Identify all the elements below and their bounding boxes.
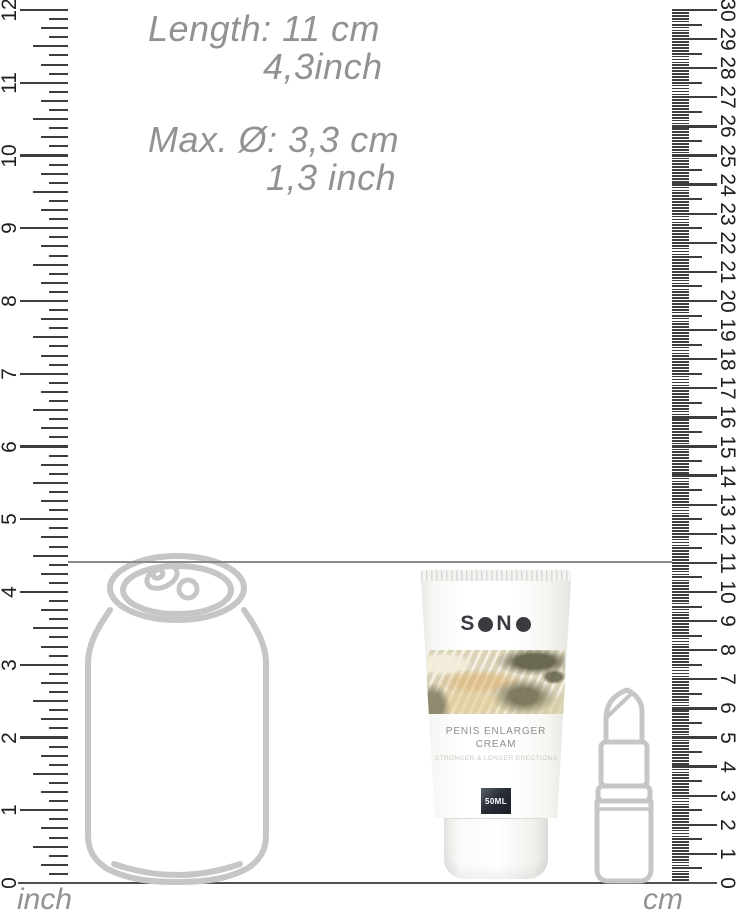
ruler-tick — [49, 309, 68, 311]
ruler-tick — [672, 297, 689, 299]
ruler-tick — [672, 609, 689, 611]
ruler-tick — [672, 449, 689, 451]
ruler-number: 5 — [0, 513, 22, 525]
ruler-tick — [672, 370, 689, 372]
ruler-tick — [672, 565, 689, 567]
ruler-tick — [672, 111, 702, 113]
ruler-tick — [672, 24, 702, 26]
ruler-tick — [41, 827, 68, 829]
ruler-tick — [672, 780, 702, 782]
ruler-tick — [672, 125, 717, 127]
ruler-tick — [672, 495, 689, 497]
ruler-tick — [672, 73, 689, 75]
ruler-tick — [672, 646, 689, 648]
ruler-tick — [672, 131, 689, 133]
ruler-tick — [672, 830, 689, 832]
ruler-tick — [672, 248, 689, 250]
ruler-tick — [672, 355, 689, 357]
ruler-tick — [672, 585, 689, 587]
ruler-tick — [672, 606, 702, 608]
ruler-number: 9 — [0, 222, 22, 234]
ruler-tick — [672, 795, 717, 797]
ruler-tick — [672, 451, 689, 453]
ruler-number: 28 — [715, 57, 737, 80]
ruler-tick — [672, 806, 689, 808]
ruler-tick — [672, 18, 689, 20]
ruler-tick — [672, 547, 702, 549]
ruler-tick — [672, 676, 689, 678]
ruler-tick — [672, 152, 689, 154]
ruler-tick — [672, 213, 717, 215]
ruler-tick — [672, 143, 689, 145]
ruler-tick — [672, 483, 689, 485]
ruler-tick — [672, 454, 689, 456]
ruler-tick — [672, 507, 689, 509]
ruler-number: 25 — [715, 144, 737, 167]
ruler-tick — [41, 864, 68, 866]
ruler-tick — [672, 137, 689, 139]
ruler-tick — [672, 222, 689, 224]
ruler-tick — [672, 88, 689, 90]
ruler-tick — [672, 763, 689, 765]
ruler-tick — [49, 691, 68, 693]
ruler-tick — [672, 91, 689, 93]
ruler-tick — [672, 530, 689, 532]
ruler-tick — [20, 518, 68, 520]
ruler-tick — [41, 245, 68, 247]
ruler-tick — [49, 400, 68, 402]
ruler-number: 8 — [0, 295, 22, 307]
length-annotation: Length: 11 cm — [148, 8, 380, 50]
ruler-tick — [672, 283, 689, 285]
ruler-tick — [672, 140, 702, 142]
ruler-tick — [672, 99, 689, 101]
ruler-tick — [41, 27, 68, 29]
ruler-number: 8 — [715, 644, 737, 656]
ruler-tick — [49, 18, 68, 20]
ruler-tick — [672, 801, 689, 803]
ruler-tick — [672, 306, 689, 308]
ruler-tick — [672, 524, 689, 526]
ruler-number: 3 — [715, 790, 737, 802]
ruler-tick — [672, 798, 689, 800]
ruler-tick — [41, 209, 68, 211]
ruler-tick — [672, 224, 689, 226]
ruler-tick — [41, 173, 68, 175]
ruler-tick — [672, 710, 689, 712]
ruler-tick — [33, 191, 68, 193]
ruler-tick — [672, 481, 689, 483]
ruler-tick — [672, 777, 689, 779]
ruler-tick — [672, 597, 689, 599]
ruler-number: 7 — [0, 368, 22, 380]
ruler-tick — [41, 755, 68, 757]
ruler-tick — [672, 154, 717, 156]
ruler-tick — [672, 245, 689, 247]
ruler-tick — [672, 667, 689, 669]
ruler-tick — [49, 291, 68, 293]
ruler-tick — [672, 690, 689, 692]
ruler-tick — [672, 163, 689, 165]
ruler-tick — [672, 539, 689, 541]
ruler-tick — [672, 285, 702, 287]
ruler-tick — [672, 658, 689, 660]
cm-ruler: 0123456789101112131415161718192021222324… — [660, 0, 737, 916]
ruler-tick — [49, 91, 68, 93]
ruler-number: 1 — [715, 848, 737, 860]
ruler-tick — [672, 841, 689, 843]
ruler-tick — [49, 382, 68, 384]
ruler-tick — [672, 183, 717, 185]
tube-crimp-seal — [421, 570, 571, 582]
ruler-number: 16 — [715, 406, 737, 429]
ruler-tick — [49, 709, 68, 711]
ruler-tick — [49, 236, 68, 238]
ruler-tick — [672, 553, 689, 555]
ruler-number: 30 — [715, 0, 737, 22]
ruler-tick — [49, 455, 68, 457]
ruler-tick — [49, 164, 68, 166]
ruler-tick — [49, 491, 68, 493]
ruler-tick — [672, 268, 689, 270]
ruler-tick — [672, 210, 689, 212]
ruler-tick — [672, 684, 689, 686]
ruler-tick — [672, 466, 689, 468]
ruler-tick — [672, 300, 717, 302]
ruler-tick — [672, 664, 702, 666]
ruler-tick — [672, 457, 689, 459]
ruler-tick — [33, 700, 68, 702]
ruler-tick — [672, 865, 689, 867]
ruler-tick — [672, 760, 689, 762]
ruler-tick — [672, 146, 689, 148]
ruler-tick — [672, 725, 689, 727]
ruler-tick — [672, 678, 717, 680]
ruler-number: 12 — [0, 0, 22, 22]
ruler-number: 2 — [0, 732, 22, 744]
ruler-tick — [672, 321, 689, 323]
ruler-tick — [672, 251, 689, 253]
ruler-tick — [672, 399, 689, 401]
ruler-tick — [49, 564, 68, 566]
ruler-tick — [672, 879, 689, 881]
ruler-tick — [672, 713, 689, 715]
ruler-tick — [672, 53, 702, 55]
ruler-tick — [672, 492, 689, 494]
ruler-number: 6 — [715, 703, 737, 715]
ruler-tick — [49, 182, 68, 184]
ruler-tick — [672, 774, 689, 776]
ruler-number: 11 — [0, 72, 22, 94]
ruler-tick — [672, 734, 689, 736]
ruler-number: 22 — [715, 231, 737, 254]
ruler-number: 10 — [715, 580, 737, 603]
ruler-tick — [672, 655, 689, 657]
ruler-tick — [672, 588, 689, 590]
ruler-tick — [672, 422, 689, 424]
ruler-tick — [49, 582, 68, 584]
ruler-number: 19 — [715, 318, 737, 341]
ruler-tick — [672, 600, 689, 602]
ruler-tick — [49, 273, 68, 275]
ruler-tick — [672, 859, 689, 861]
ruler-tick — [672, 853, 717, 855]
ruler-tick — [672, 117, 689, 119]
ruler-tick — [672, 804, 689, 806]
ruler-tick — [672, 160, 689, 162]
ruler-tick — [672, 329, 717, 331]
ruler-tick — [672, 12, 689, 14]
brand-o-disc — [478, 617, 493, 632]
ruler-tick — [672, 428, 689, 430]
ruler-tick — [672, 644, 689, 646]
ruler-number: 4 — [715, 761, 737, 773]
ruler-tick — [672, 850, 689, 852]
ruler-tick — [672, 361, 689, 363]
ruler-tick — [672, 862, 689, 864]
ruler-tick — [672, 82, 702, 84]
ruler-tick — [49, 800, 68, 802]
ruler-tick — [49, 655, 68, 657]
ruler-tick — [49, 546, 68, 548]
ruler-tick — [672, 393, 689, 395]
ruler-tick — [672, 580, 689, 582]
volume-badge: 50ML — [481, 788, 511, 814]
ruler-tick — [672, 233, 689, 235]
ruler-tick — [41, 682, 68, 684]
ruler-tick — [672, 47, 689, 49]
ruler-tick — [672, 67, 717, 69]
ruler-tick — [49, 327, 68, 329]
ruler-tick — [49, 36, 68, 38]
ruler-tick — [672, 437, 689, 439]
ruler-tick — [672, 536, 689, 538]
ruler-number: 2 — [715, 819, 737, 831]
ruler-tick — [672, 364, 689, 366]
ruler-tick — [672, 219, 689, 221]
ruler-tick — [672, 187, 689, 189]
ruler-tick — [672, 489, 702, 491]
ruler-tick — [20, 664, 68, 666]
ruler-tick — [672, 405, 689, 407]
lipstick-icon — [591, 683, 665, 885]
ruler-tick — [41, 355, 68, 357]
ruler-tick — [672, 44, 689, 46]
ruler-tick — [672, 641, 689, 643]
ruler-tick — [672, 172, 689, 174]
ruler-tick — [41, 464, 68, 466]
ruler-tick — [672, 469, 689, 471]
ruler-tick — [672, 358, 717, 360]
ruler-tick — [672, 102, 689, 104]
ruler-tick — [672, 134, 689, 136]
ruler-tick — [672, 105, 689, 107]
ruler-tick — [672, 620, 717, 622]
ruler-tick — [672, 871, 689, 873]
ruler-tick — [672, 32, 689, 34]
ruler-tick — [49, 764, 68, 766]
ruler-tick — [672, 617, 689, 619]
ruler-tick — [672, 661, 689, 663]
ruler-tick — [672, 827, 689, 829]
ruler-tick — [672, 486, 689, 488]
ruler-tick — [672, 818, 689, 820]
product-tube: SN PENIS ENLARGER CREAM STRONGER & LONGE… — [420, 566, 572, 878]
ruler-tick — [672, 478, 689, 480]
ruler-tick — [41, 64, 68, 66]
ruler-tick — [672, 15, 689, 17]
ruler-tick — [672, 873, 689, 875]
ruler-tick — [672, 510, 689, 512]
ruler-tick — [49, 636, 68, 638]
ruler-tick — [672, 181, 689, 183]
ruler-tick — [672, 27, 689, 29]
cm-unit-label: cm — [643, 883, 683, 916]
ruler-tick — [672, 291, 689, 293]
ruler-tick — [672, 70, 689, 72]
ruler-tick — [49, 473, 68, 475]
ruler-tick — [672, 303, 689, 305]
ruler-tick — [672, 836, 689, 838]
ruler-tick — [672, 280, 689, 282]
ruler-tick — [672, 416, 717, 418]
ruler-tick — [672, 385, 689, 387]
ruler-number: 0 — [715, 877, 737, 889]
ruler-tick — [672, 227, 702, 229]
ruler-tick — [41, 791, 68, 793]
ruler-tick — [672, 9, 717, 11]
ruler-tick — [672, 513, 689, 515]
tube-cap — [444, 818, 548, 879]
ruler-tick — [672, 792, 689, 794]
ruler-number: 5 — [715, 732, 737, 744]
ruler-number: 15 — [715, 435, 737, 458]
ruler-tick — [672, 474, 717, 476]
ruler-tick — [672, 332, 689, 334]
ruler-tick — [672, 242, 717, 244]
ruler-tick — [672, 518, 702, 520]
ruler-tick — [49, 782, 68, 784]
ruler-tick — [672, 312, 689, 314]
ruler-tick — [672, 856, 689, 858]
brand-logo: SN — [420, 614, 572, 634]
ruler-tick — [672, 335, 689, 337]
ruler-tick — [672, 652, 689, 654]
ruler-tick — [672, 757, 689, 759]
ruler-tick — [672, 326, 689, 328]
ruler-tick — [672, 414, 689, 416]
ruler-tick — [672, 833, 689, 835]
ruler-number: 18 — [715, 348, 737, 371]
tube-body: SN PENIS ENLARGER CREAM STRONGER & LONGE… — [420, 581, 572, 818]
ruler-tick — [49, 727, 68, 729]
ruler-tick — [672, 315, 702, 317]
ruler-tick — [41, 282, 68, 284]
ruler-tick — [49, 746, 68, 748]
ruler-tick — [672, 635, 702, 637]
ruler-tick — [672, 559, 689, 561]
ruler-tick — [20, 9, 68, 11]
ruler-tick — [672, 574, 689, 576]
ruler-tick — [672, 472, 689, 474]
ruler-tick — [672, 108, 689, 110]
ruler-tick — [672, 353, 689, 355]
ruler-tick — [672, 158, 689, 160]
ruler-tick — [672, 501, 689, 503]
ruler-tick — [672, 64, 689, 66]
ruler-tick — [672, 239, 689, 241]
ruler-tick — [672, 30, 689, 32]
ruler-tick — [672, 629, 689, 631]
brand-letter: S — [460, 612, 475, 636]
ruler-number: 3 — [0, 659, 22, 671]
ruler-tick — [672, 521, 689, 523]
ruler-tick — [672, 128, 689, 130]
ruler-tick — [672, 195, 689, 197]
ruler-tick — [672, 425, 689, 427]
product-dimension-diagram: 0123456789101112 01234567891011121314151… — [0, 0, 737, 916]
ruler-tick — [672, 347, 689, 349]
ruler-tick — [672, 838, 702, 840]
ruler-number: 14 — [715, 464, 737, 487]
ruler-tick — [672, 309, 689, 311]
ruler-tick — [49, 200, 68, 202]
ruler-tick — [672, 207, 689, 209]
ruler-tick — [672, 876, 689, 878]
ruler-tick — [672, 719, 689, 721]
ruler-number: 29 — [715, 27, 737, 50]
ruler-tick — [33, 846, 68, 848]
ruler-tick — [672, 515, 689, 517]
ruler-tick — [672, 169, 702, 171]
ruler-tick — [672, 256, 702, 258]
ruler-tick — [672, 728, 689, 730]
ruler-tick — [672, 440, 689, 442]
ruler-tick — [20, 82, 68, 84]
ruler-tick — [49, 54, 68, 56]
ruler-tick — [672, 262, 689, 264]
ruler-tick — [49, 345, 68, 347]
ruler-tick — [672, 445, 717, 447]
product-name-line1: PENIS ENLARGER — [420, 725, 572, 738]
ruler-tick — [672, 568, 689, 570]
ruler-tick — [672, 382, 689, 384]
ruler-tick — [41, 136, 68, 138]
ruler-tick — [33, 264, 68, 266]
ruler-tick — [49, 145, 68, 147]
ruler-tick — [672, 844, 689, 846]
ruler-tick — [20, 736, 68, 738]
ruler-tick — [672, 638, 689, 640]
ruler-tick — [672, 821, 689, 823]
ruler-tick — [672, 789, 689, 791]
ruler-tick — [672, 387, 717, 389]
ruler-tick — [672, 545, 689, 547]
ruler-tick — [672, 230, 689, 232]
ruler-number: 4 — [0, 586, 22, 598]
ruler-tick — [672, 702, 689, 704]
ruler-tick — [672, 198, 702, 200]
ruler-tick — [672, 216, 689, 218]
ruler-tick — [672, 591, 717, 593]
ruler-tick — [672, 443, 689, 445]
ruler-tick — [672, 533, 717, 535]
ruler-tick — [672, 274, 689, 276]
ruler-tick — [672, 434, 689, 436]
ruler-tick — [49, 109, 68, 111]
ruler-tick — [41, 573, 68, 575]
ruler-tick — [672, 85, 689, 87]
